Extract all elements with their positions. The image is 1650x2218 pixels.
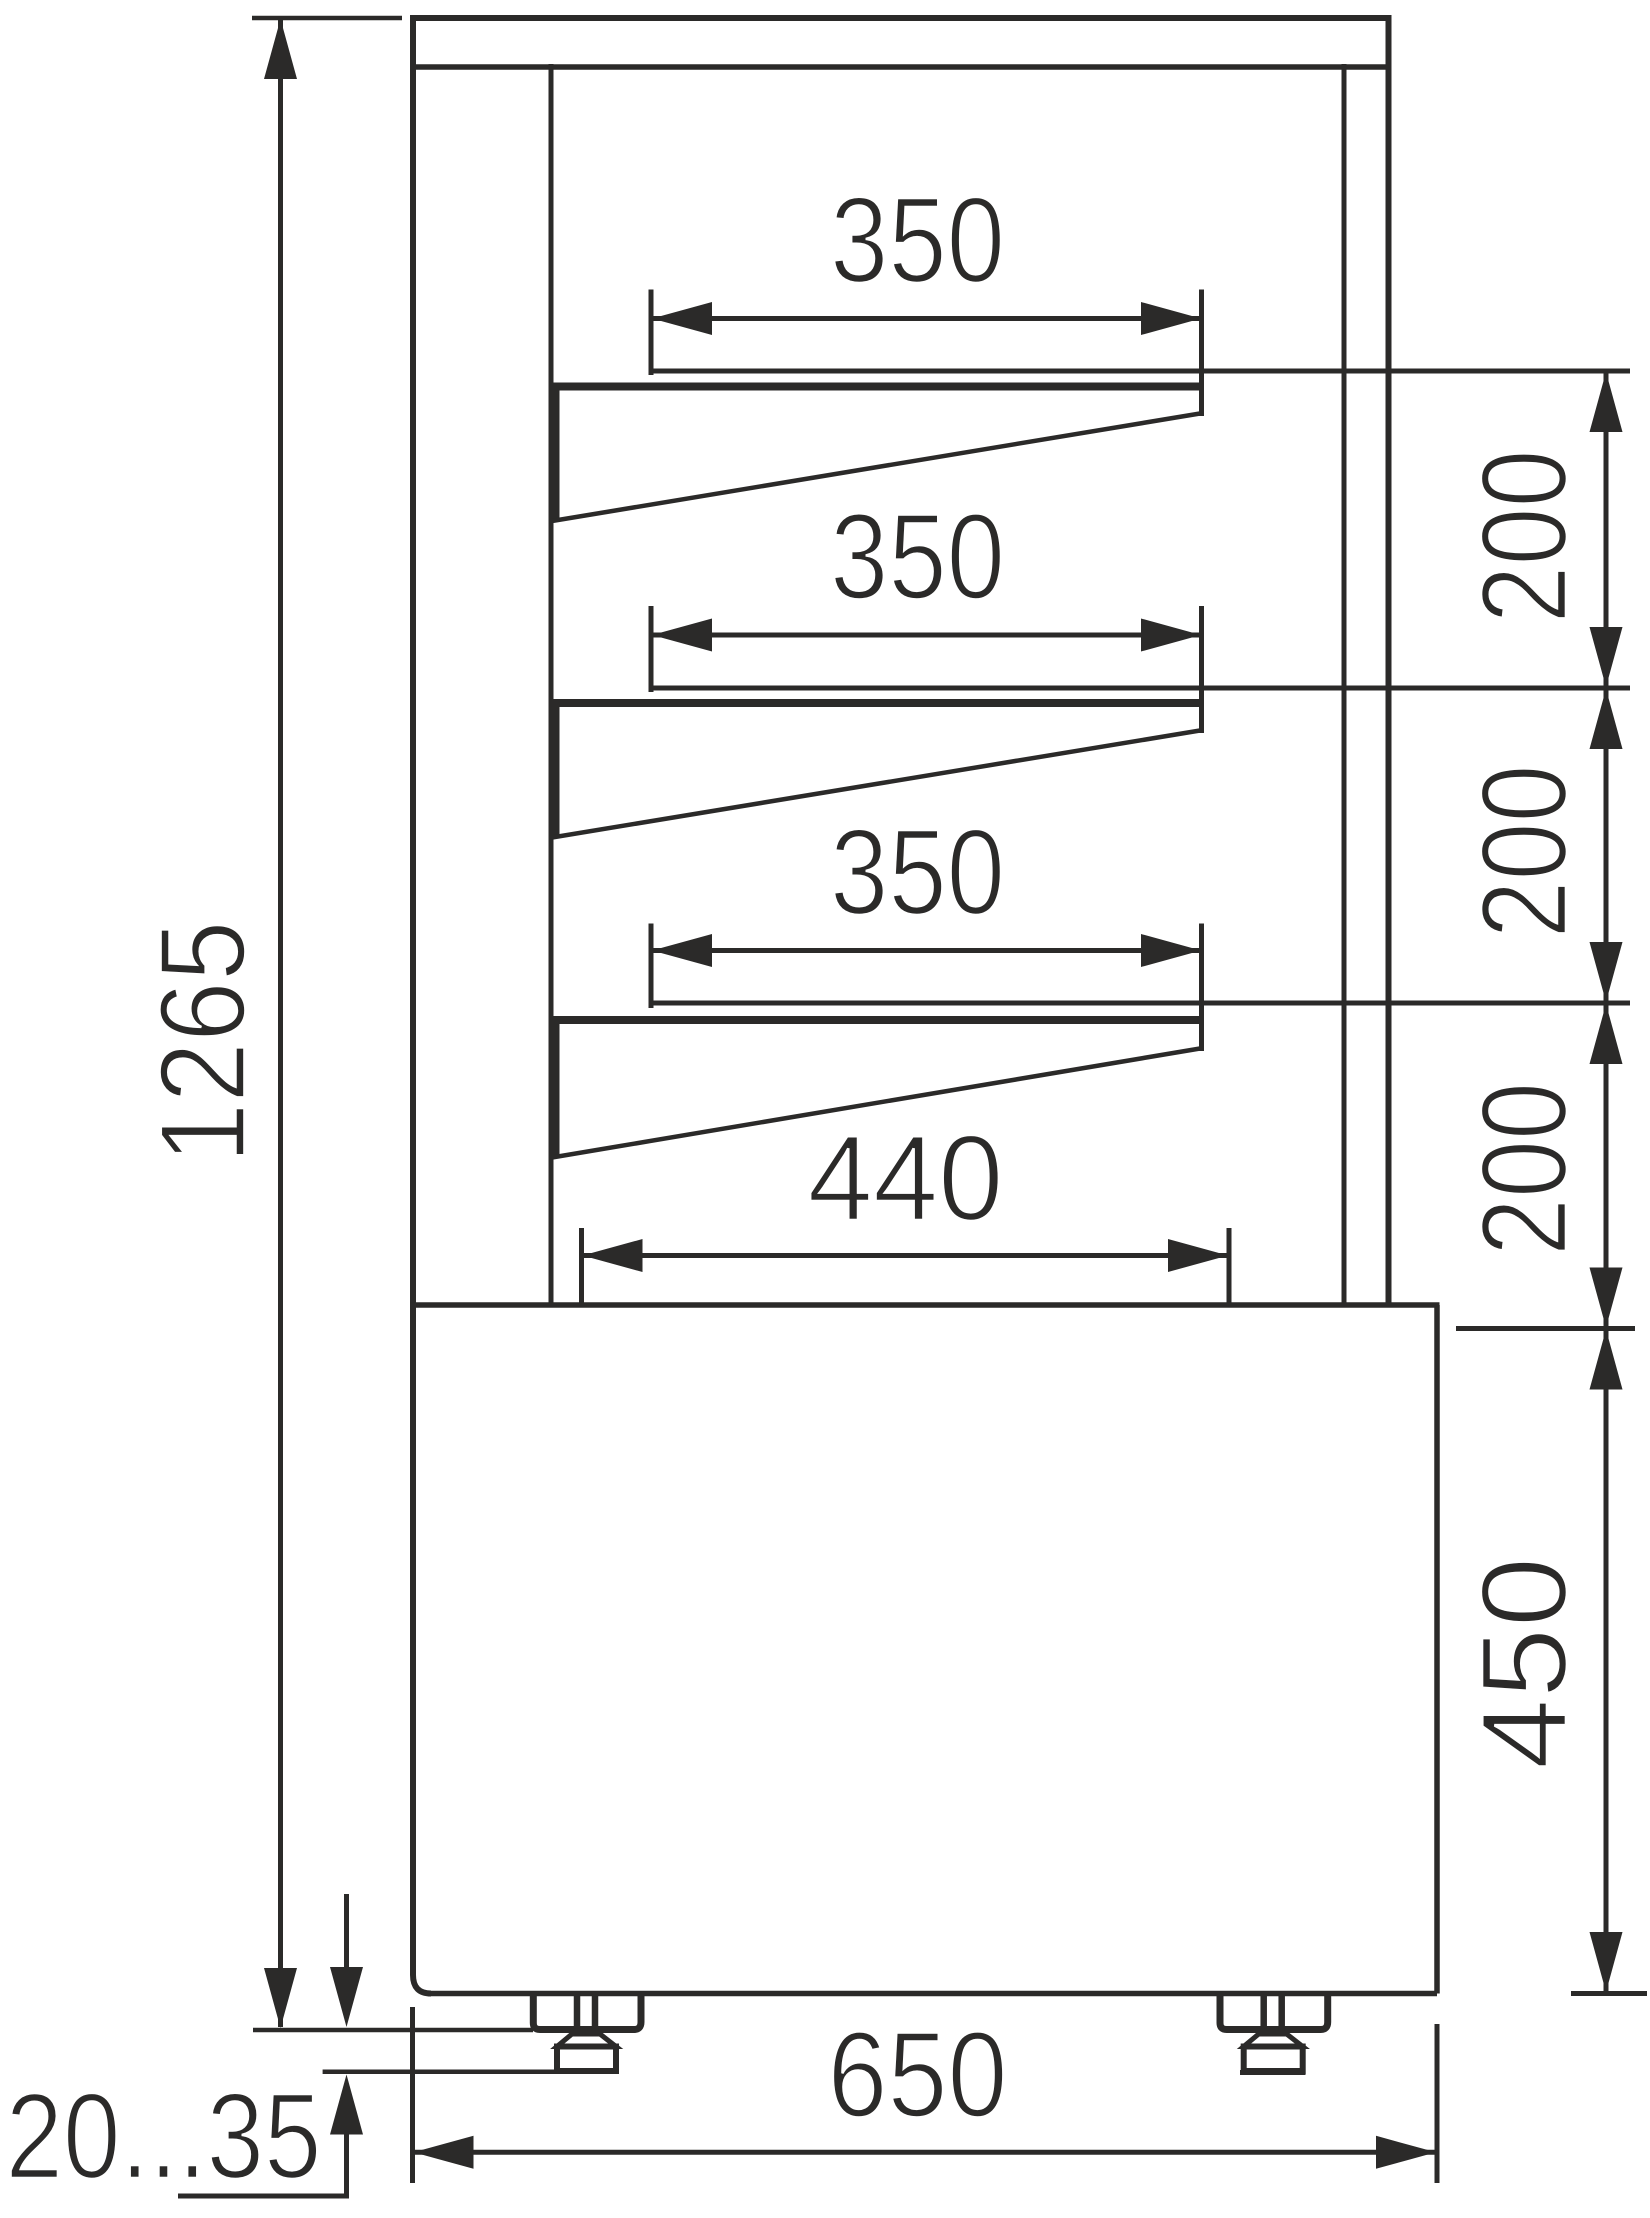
svg-text:200: 200 <box>1456 450 1592 624</box>
svg-text:1265: 1265 <box>135 921 271 1164</box>
svg-text:450: 450 <box>1456 1557 1592 1770</box>
svg-text:350: 350 <box>830 172 1005 308</box>
svg-text:440: 440 <box>808 1110 1004 1246</box>
svg-text:350: 350 <box>830 804 1005 940</box>
svg-text:350: 350 <box>830 489 1005 625</box>
svg-text:650: 650 <box>828 2007 1008 2143</box>
svg-text:20...35: 20...35 <box>6 2068 322 2204</box>
svg-text:200: 200 <box>1456 765 1592 939</box>
svg-text:200: 200 <box>1456 1082 1592 1256</box>
